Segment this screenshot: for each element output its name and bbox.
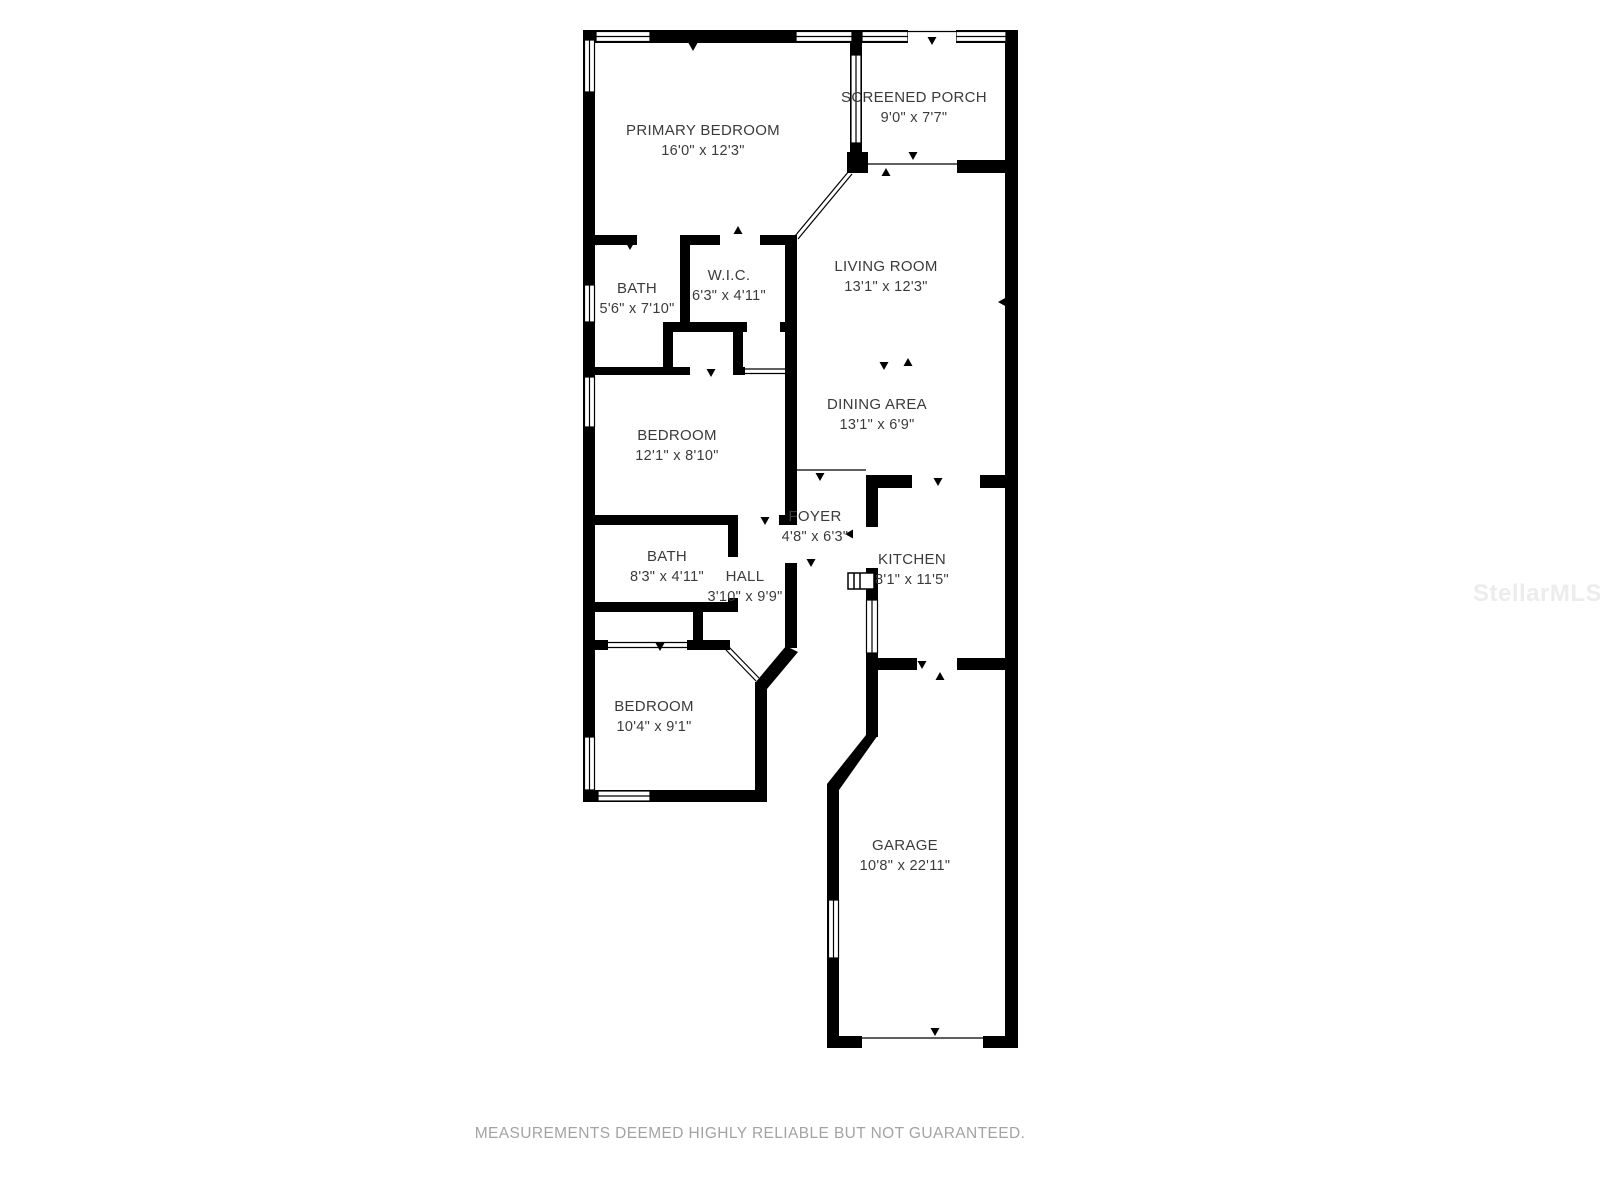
room-label-bedroom-3: BEDROOM 10'4" x 9'1" — [614, 696, 694, 738]
appliance-symbol — [848, 573, 874, 589]
room-label-primary-bedroom: PRIMARY BEDROOM 16'0" x 12'3" — [626, 120, 780, 162]
room-dims: 16'0" x 12'3" — [626, 141, 780, 162]
room-dims: 4'8" x 6'3" — [782, 527, 849, 548]
room-dims: 8'3" x 4'11" — [630, 567, 704, 588]
room-label-hall: HALL 3'10" x 9'9" — [707, 566, 782, 608]
measurements-disclaimer: MEASUREMENTS DEEMED HIGHLY RELIABLE BUT … — [475, 1125, 1026, 1143]
room-name: BATH — [599, 278, 674, 299]
room-label-living-room: LIVING ROOM 13'1" x 12'3" — [834, 256, 937, 298]
room-name: W.I.C. — [692, 265, 766, 286]
room-name: HALL — [707, 566, 782, 587]
room-label-dining-area: DINING AREA 13'1" x 6'9" — [827, 394, 927, 436]
room-name: DINING AREA — [827, 394, 927, 415]
room-label-wic: W.I.C. 6'3" x 4'11" — [692, 265, 766, 307]
room-label-bath-2: BATH 8'3" x 4'11" — [630, 546, 704, 588]
room-dims: 10'4" x 9'1" — [614, 717, 694, 738]
room-name: BEDROOM — [614, 696, 694, 717]
room-name: SCREENED PORCH — [841, 87, 987, 108]
room-name: FOYER — [782, 506, 849, 527]
room-label-bedroom-2: BEDROOM 12'1" x 8'10" — [635, 425, 718, 467]
room-label-foyer: FOYER 4'8" x 6'3" — [782, 506, 849, 548]
room-dims: 5'6" x 7'10" — [599, 299, 674, 320]
floorplan-svg — [0, 0, 1600, 1200]
room-dims: 9'0" x 7'7" — [841, 108, 987, 129]
room-label-kitchen: KITCHEN 8'1" x 11'5" — [875, 549, 949, 591]
stellar-mls-watermark: StellarMLS — [1473, 580, 1600, 608]
room-label-bath-1: BATH 5'6" x 7'10" — [599, 278, 674, 320]
room-dims: 13'1" x 12'3" — [834, 277, 937, 298]
room-label-garage: GARAGE 10'8" x 22'11" — [860, 835, 951, 877]
room-name: LIVING ROOM — [834, 256, 937, 277]
floorplan-page: PRIMARY BEDROOM 16'0" x 12'3" SCREENED P… — [0, 0, 1600, 1200]
room-dims: 10'8" x 22'11" — [860, 856, 951, 877]
room-label-screened-porch: SCREENED PORCH 9'0" x 7'7" — [841, 87, 987, 129]
room-name: KITCHEN — [875, 549, 949, 570]
room-name: BATH — [630, 546, 704, 567]
room-dims: 3'10" x 9'9" — [707, 587, 782, 608]
room-name: BEDROOM — [635, 425, 718, 446]
room-dims: 13'1" x 6'9" — [827, 415, 927, 436]
room-name: GARAGE — [860, 835, 951, 856]
room-dims: 8'1" x 11'5" — [875, 570, 949, 591]
room-name: PRIMARY BEDROOM — [626, 120, 780, 141]
room-dims: 12'1" x 8'10" — [635, 446, 718, 467]
room-dims: 6'3" x 4'11" — [692, 286, 766, 307]
